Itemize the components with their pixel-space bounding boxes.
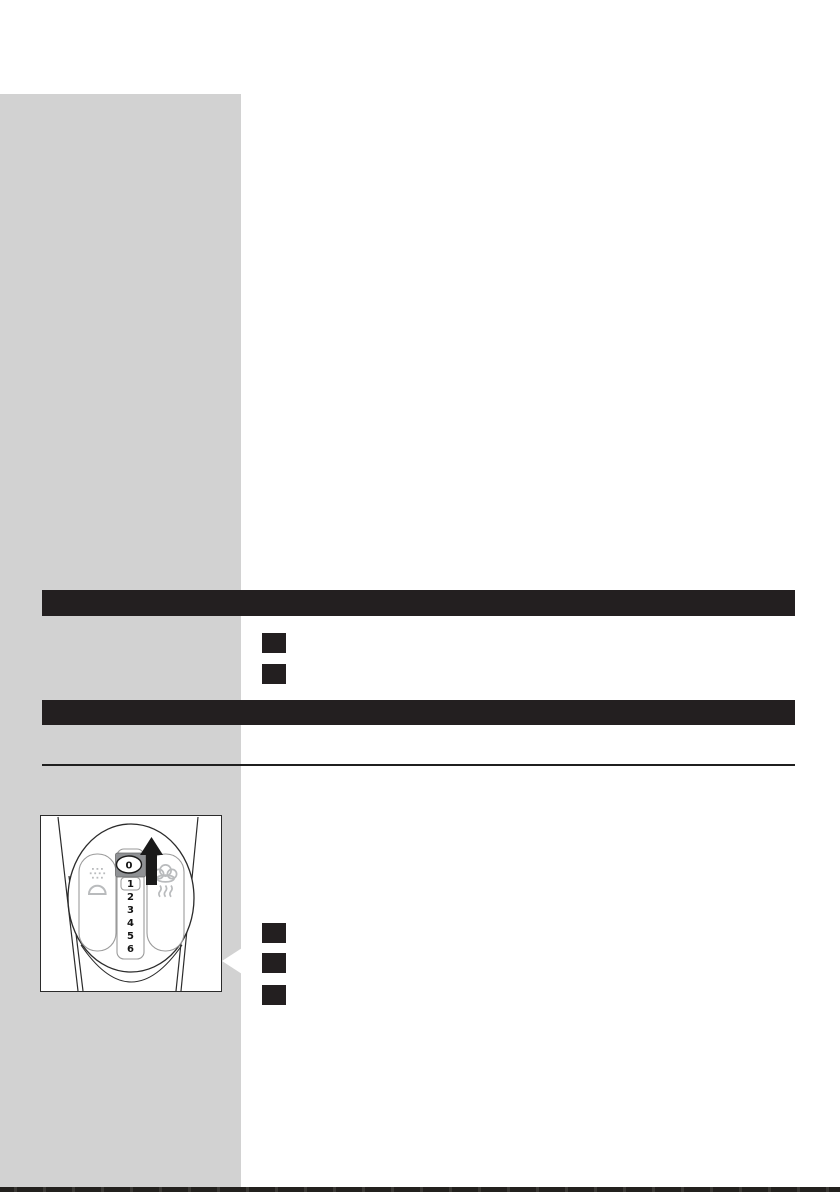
dial-number-2: 2 <box>127 892 134 903</box>
dial-number-0: 0 <box>126 861 133 872</box>
step-marker-square <box>262 633 286 653</box>
sidebar-panel <box>0 94 241 1192</box>
dial-number-1: 1 <box>127 879 134 890</box>
dial-number-3: 3 <box>127 905 134 916</box>
step-marker-square <box>262 923 286 943</box>
dial-number-5: 5 <box>127 931 134 942</box>
section-header-bar-1 <box>42 590 795 616</box>
dial-number-6: 6 <box>127 944 134 955</box>
step-marker-square <box>262 985 286 1005</box>
steam-dial-illustration: 0 1 2 3 4 5 6 <box>40 815 222 992</box>
section-header-bar-2 <box>42 700 795 725</box>
step-marker-square <box>262 953 286 973</box>
dial-number-4: 4 <box>127 918 134 929</box>
page-bottom-scan-edge <box>0 1187 840 1192</box>
callout-pointer <box>222 948 242 974</box>
step-marker-square <box>262 664 286 684</box>
section-divider-line <box>42 764 795 766</box>
iron-top-view-drawing: 0 1 2 3 4 5 6 <box>41 816 221 991</box>
